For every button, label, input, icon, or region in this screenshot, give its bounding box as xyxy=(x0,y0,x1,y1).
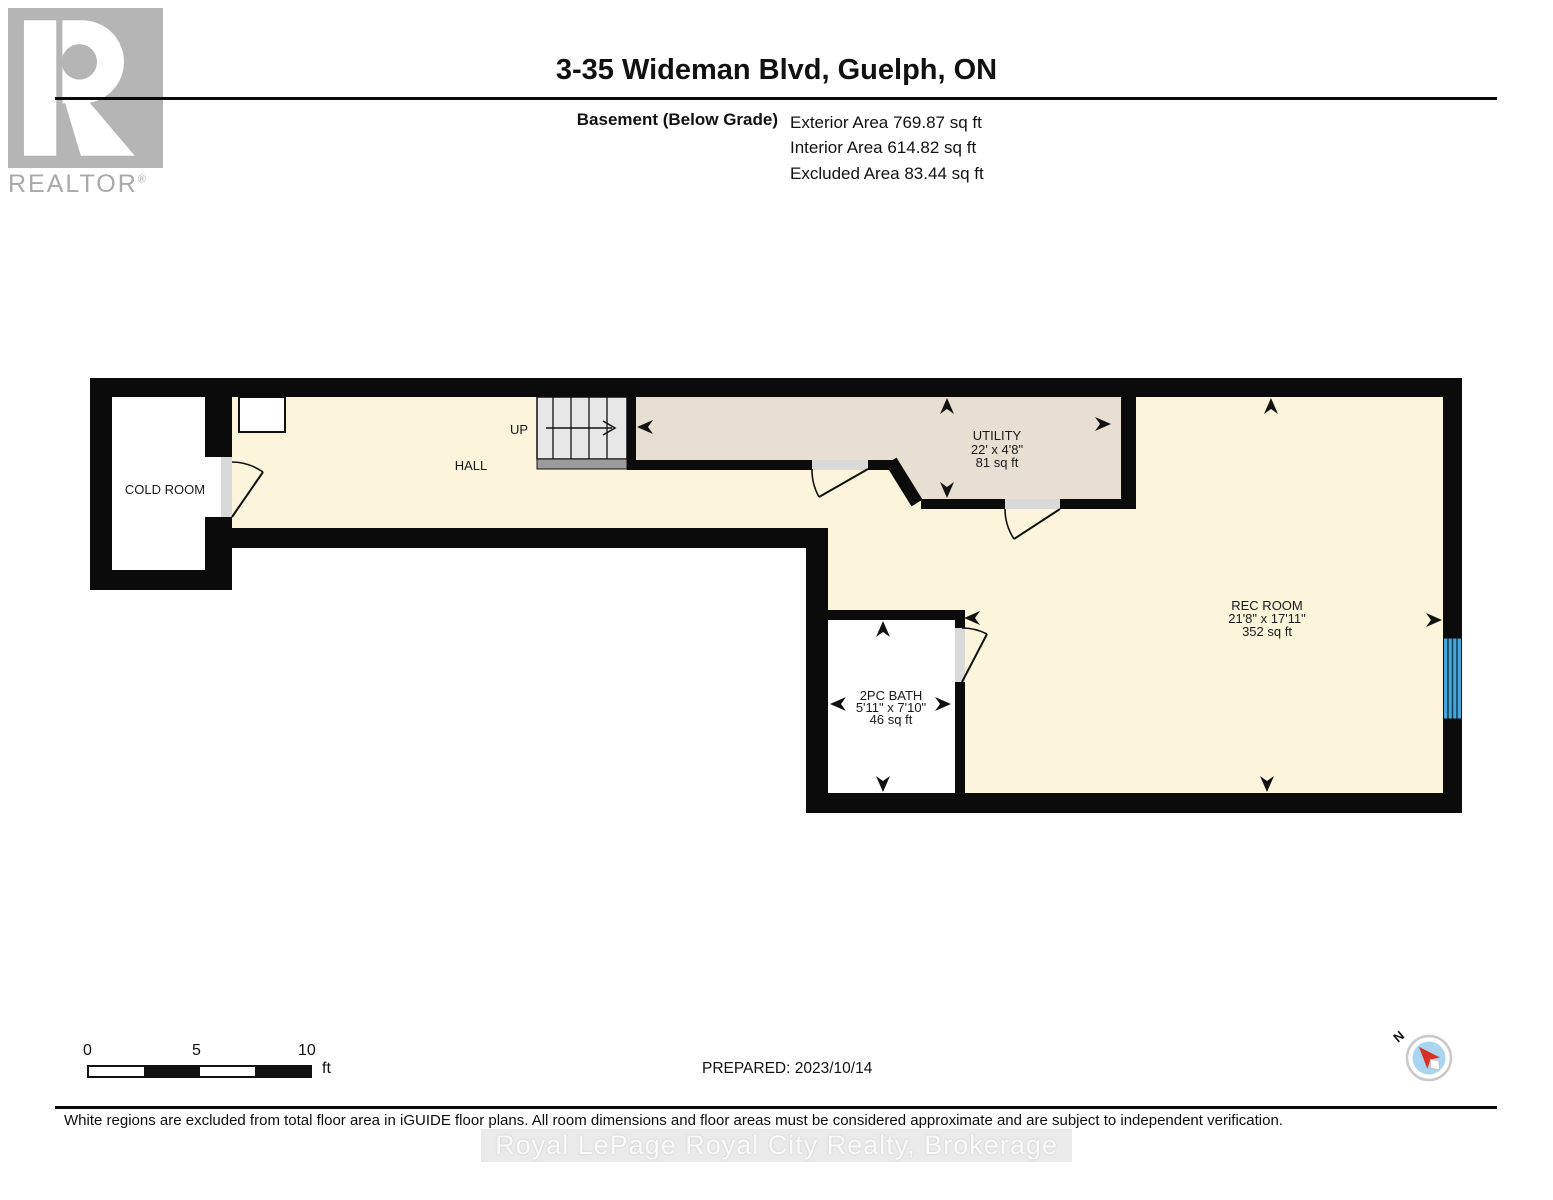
scale-bar: 0 5 10 ft xyxy=(85,1042,345,1082)
floor-plan-drawing: COLD ROOM HALL UP UTILITY 22' x 4'8" 81 … xyxy=(0,0,1553,1200)
prepared-date: PREPARED: 2023/10/14 xyxy=(702,1060,872,1078)
svg-text:UTILITY: UTILITY xyxy=(973,428,1022,443)
footer-divider xyxy=(55,1106,1497,1109)
scale-tick-5: 5 xyxy=(192,1042,201,1060)
utility-label: UTILITY 22' x 4'8" 81 sq ft xyxy=(971,428,1024,470)
brokerage-watermark: Royal LePage Royal City Realty, Brokerag… xyxy=(481,1129,1072,1162)
svg-text:81 sq ft: 81 sq ft xyxy=(976,455,1019,470)
scale-tick-0: 0 xyxy=(83,1042,92,1060)
stairs xyxy=(537,397,627,469)
floor-plan-page: REALTOR® 3-35 Wideman Blvd, Guelph, ON B… xyxy=(0,0,1553,1200)
cold-room-label: COLD ROOM xyxy=(125,482,205,497)
watermark-row: Royal LePage Royal City Realty, Brokerag… xyxy=(0,1129,1553,1162)
scale-tick-10: 10 xyxy=(298,1042,316,1060)
svg-text:46 sq ft: 46 sq ft xyxy=(870,712,913,727)
hall-bulkhead xyxy=(239,397,285,432)
window xyxy=(1443,638,1462,720)
scale-bar-segments xyxy=(87,1065,312,1078)
scale-unit: ft xyxy=(322,1060,331,1078)
disclaimer-text: White regions are excluded from total fl… xyxy=(64,1112,1524,1129)
svg-text:352 sq ft: 352 sq ft xyxy=(1242,624,1292,639)
hall-label: HALL xyxy=(455,458,488,473)
compass-icon xyxy=(1398,1024,1460,1088)
stairs-up-label: UP xyxy=(510,422,528,437)
